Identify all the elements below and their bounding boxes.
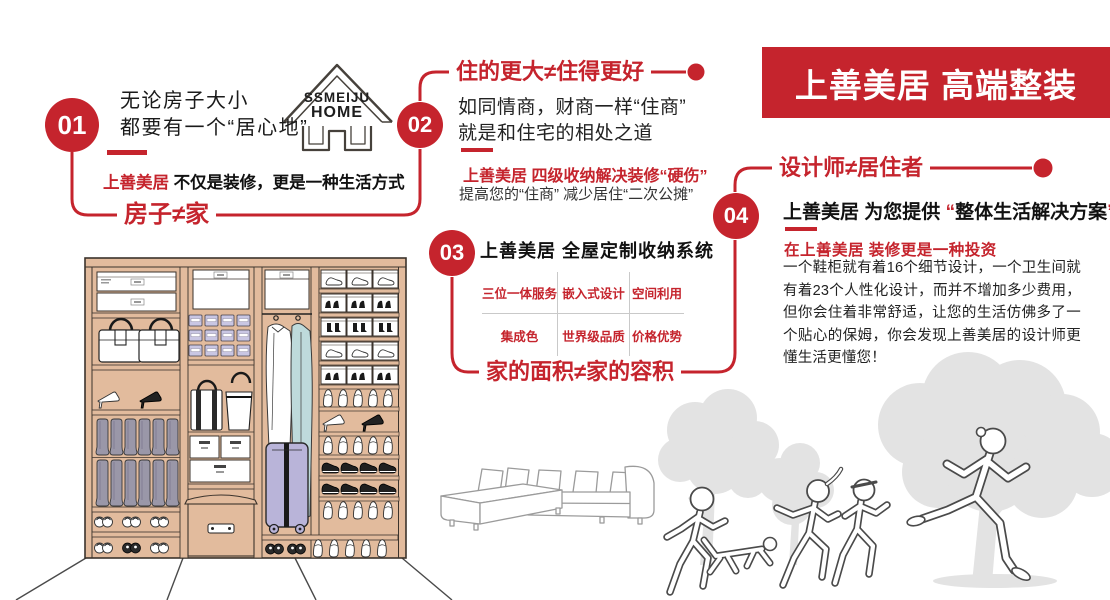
section2-body: 如同情商，财商一样“住商” 就是和住宅的相处之道 [458,95,686,147]
logo-text-line1: SSMEIJU [304,90,370,105]
table-cell: 嵌入式设计 [558,272,630,314]
section4-headline: 设计师≠居住者 [772,153,930,183]
section4-quote-text: 整体生活解决方案 [955,202,1107,223]
section4-bold-line: 上善美居 为您提供 “整体生活解决方案” [783,197,1110,224]
badge-04: 04 [713,193,759,239]
table-cell: 价格优势 [630,314,684,356]
table-cell: 集成色 [482,314,558,356]
banner-title: 上善美居 高端整装 [795,59,1077,107]
badge-02: 02 [397,102,443,148]
section2-body-line2: 就是和住宅的相处之道 [458,121,686,147]
table-cell: 三位一体服务 [482,272,558,314]
section4-paragraph: 一个鞋柜就有着16个细节设计，一个卫生间就有着23个人性化设计，而并不增加多少费… [783,257,1081,370]
section1-heading: 无论房子大小 都要有一个“居心地” [120,88,308,142]
runner-dog [704,538,777,573]
section1-keyword: 房子≠家 [117,200,216,230]
section1-heading-line1: 无论房子大小 [120,88,308,115]
section4-bold-prefix: 上善美居 为您提供 [783,202,946,223]
logo-text-line2: HOME [311,104,363,121]
section1-heading-line2: 都要有一个“居心地” [120,115,308,142]
table-cell: 世界级品质 [558,314,630,356]
section3-keyword: 家的面积≠家的容积 [479,357,681,387]
section2-sub-line: 提高您的“住商” 减少居住“二次公摊” [459,183,693,204]
brand-banner: 上善美居 高端整装 [762,47,1110,118]
section2-headline: 住的更大≠住得更好 [449,57,651,87]
wardrobe-left-bay [92,272,180,553]
section1-divider-dash [107,150,147,155]
section3-feature-table: 三位一体服务 嵌入式设计 空间利用 集成色 世界级品质 价格优势 [482,272,684,356]
runner-kid-cap [835,480,887,584]
wardrobe-illustration [85,258,406,558]
section2-body-line1: 如同情商，财商一样“住商” [458,95,686,121]
badge-01: 01 [45,98,99,152]
sofa-illustration [441,466,654,530]
badge-03: 03 [429,230,475,276]
runner-boy [667,488,725,593]
section1-slogan-text: 不仅是装修，更是一种生活方式 [174,174,405,192]
table-cell: 空间利用 [630,272,684,314]
floor-lines [16,558,452,600]
section4-divider-dash [785,227,817,231]
line-end-dot-02 [688,64,705,81]
line-end-dot-04 [1034,159,1053,178]
section1-brand: 上善美居 [103,174,169,192]
section1-slogan: 上善美居 不仅是装修，更是一种生活方式 [103,169,405,193]
section4-quote-open: “ [946,202,956,223]
section2-divider-dash [461,148,493,152]
poster-canvas: SSMEIJU HOME 上善美居 高端整装 01 02 03 04 无论房子大… [0,0,1110,600]
section3-title: 上善美居 全屋定制收纳系统 [480,237,714,263]
